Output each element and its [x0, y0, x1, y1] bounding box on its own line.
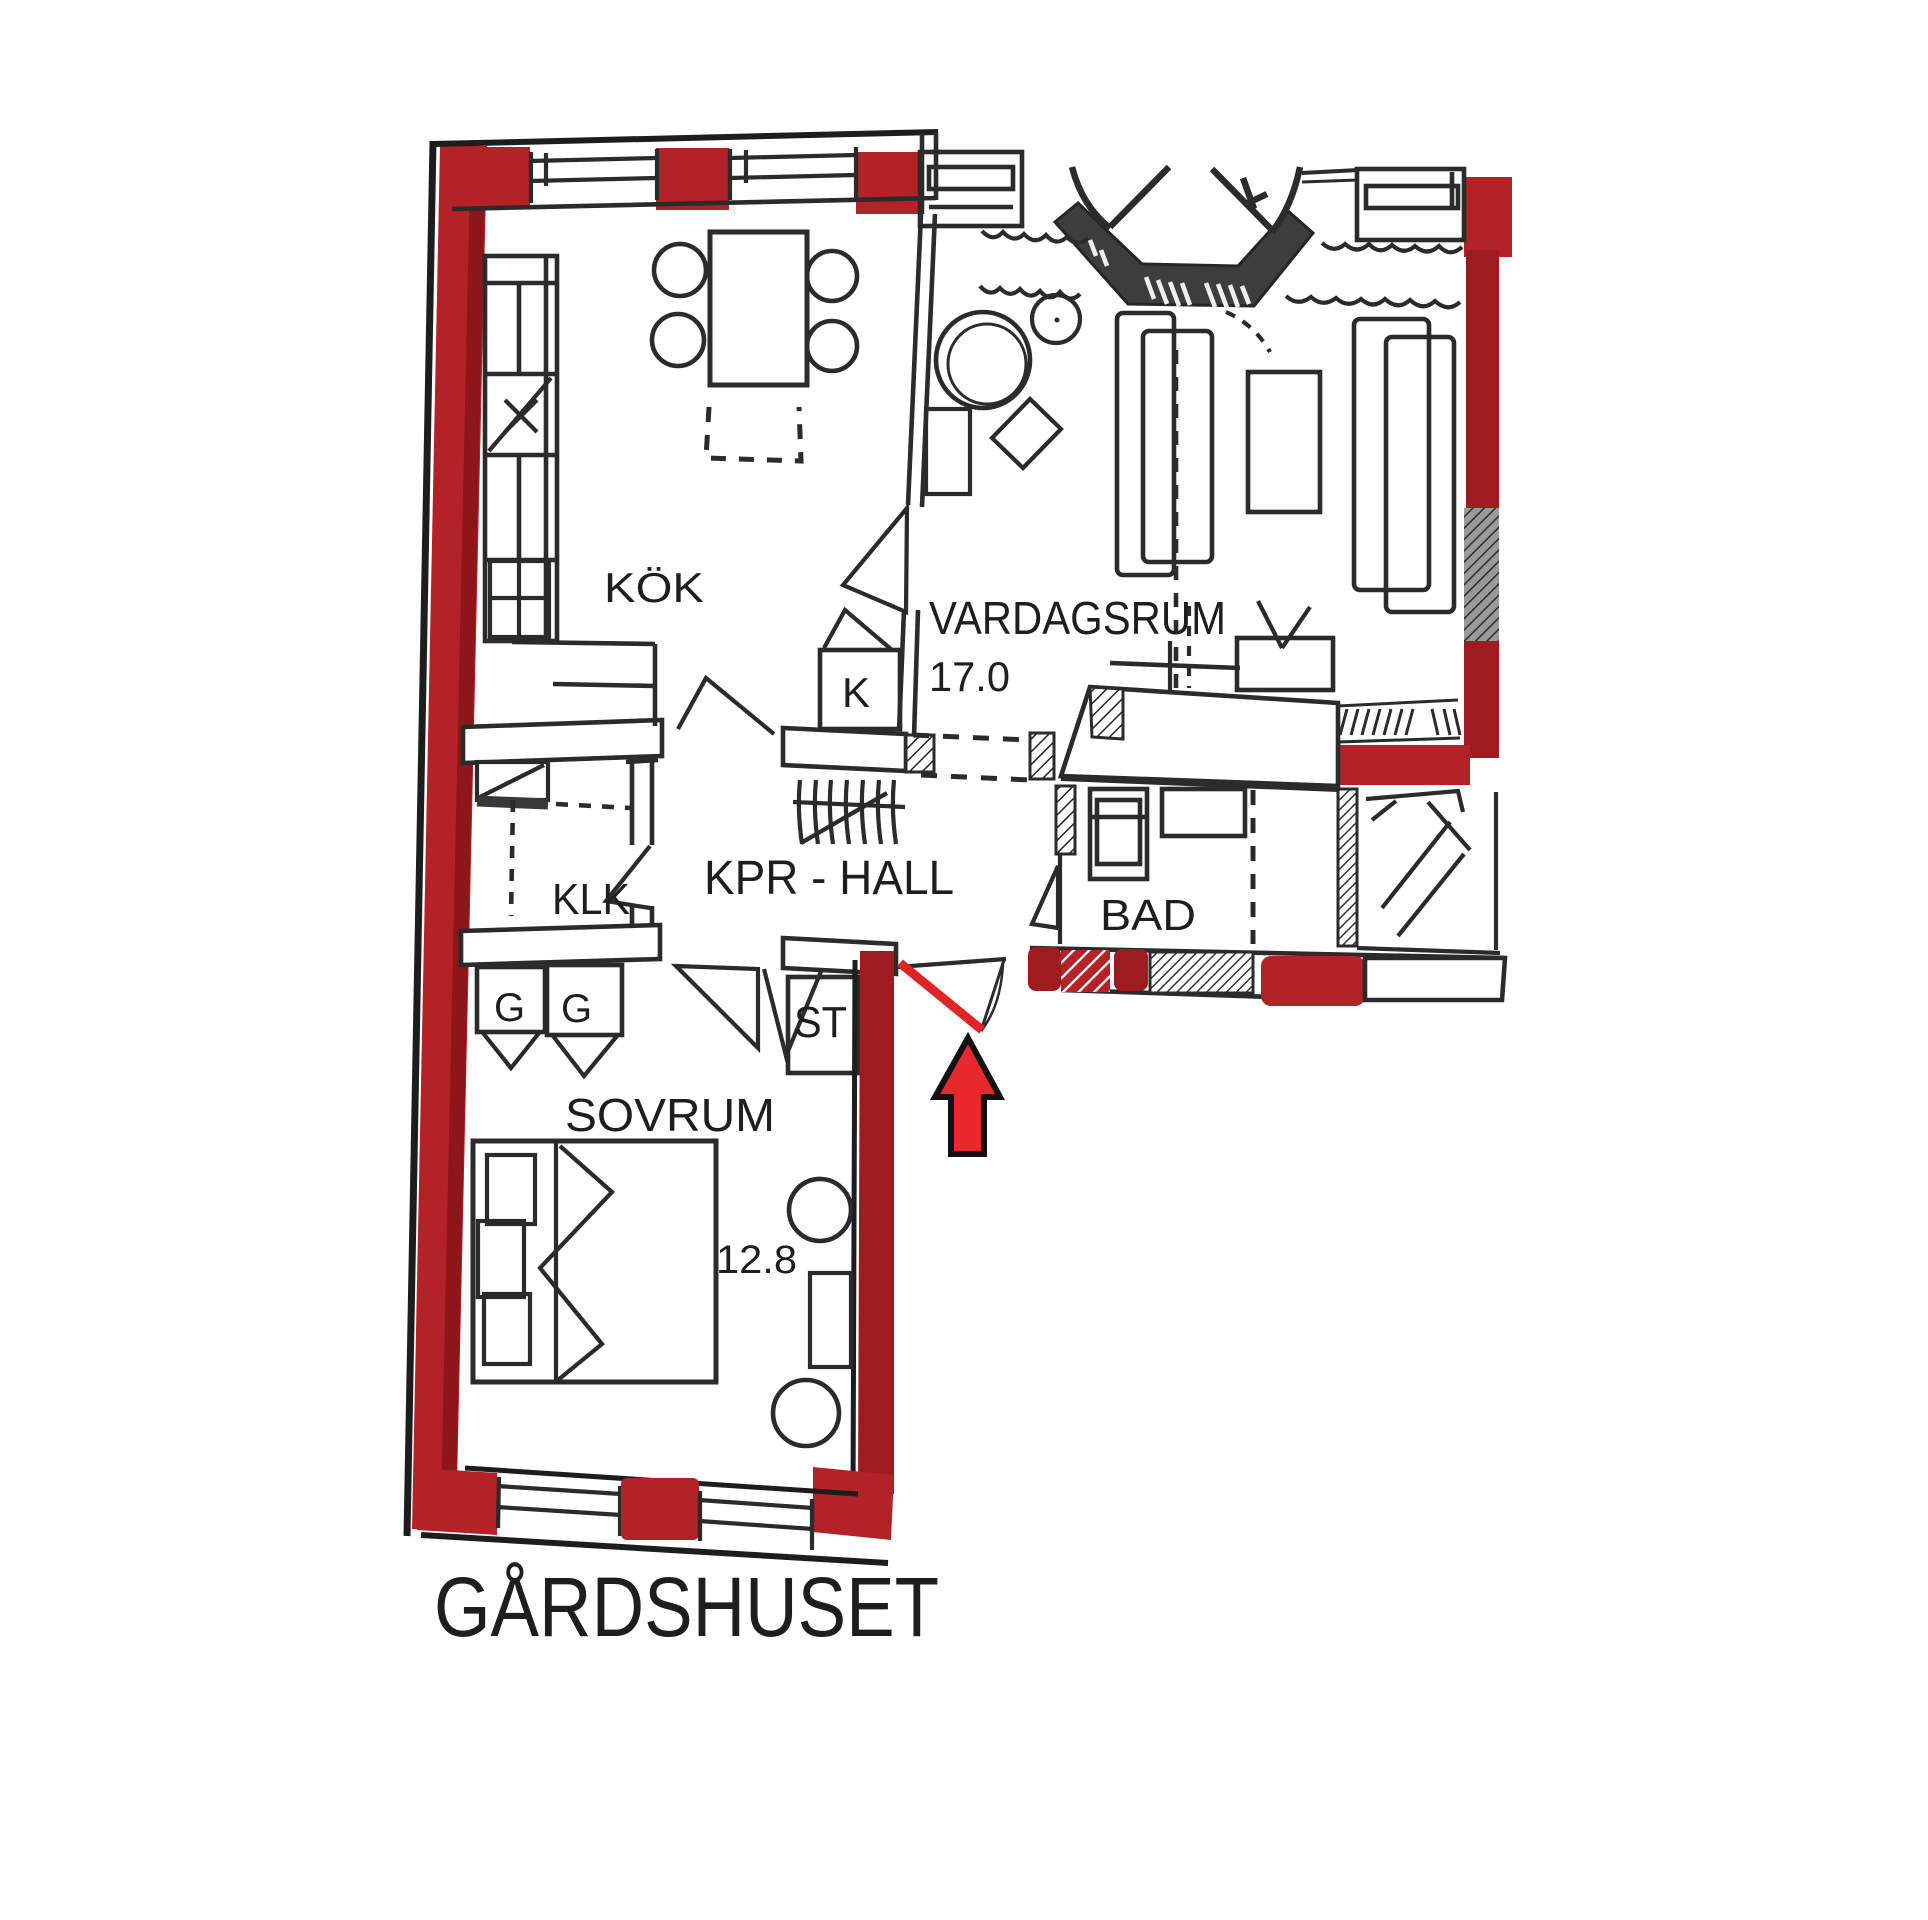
svg-text:KPR - HALL: KPR - HALL	[704, 852, 954, 905]
svg-text:K: K	[842, 669, 870, 716]
svg-text:KÖK: KÖK	[604, 564, 704, 611]
svg-text:VARDAGSRUM: VARDAGSRUM	[929, 592, 1226, 644]
svg-text:G: G	[494, 986, 525, 1030]
svg-text:ST: ST	[794, 998, 847, 1047]
svg-text:17.0: 17.0	[929, 653, 1010, 700]
svg-text:G: G	[561, 987, 592, 1031]
svg-text:GÅRDSHUSET: GÅRDSHUSET	[434, 1560, 939, 1654]
svg-text:KLK: KLK	[552, 875, 630, 924]
svg-text:BAD: BAD	[1100, 891, 1196, 940]
svg-text:SOVRUM: SOVRUM	[565, 1089, 775, 1141]
svg-text:12.8: 12.8	[716, 1238, 797, 1282]
